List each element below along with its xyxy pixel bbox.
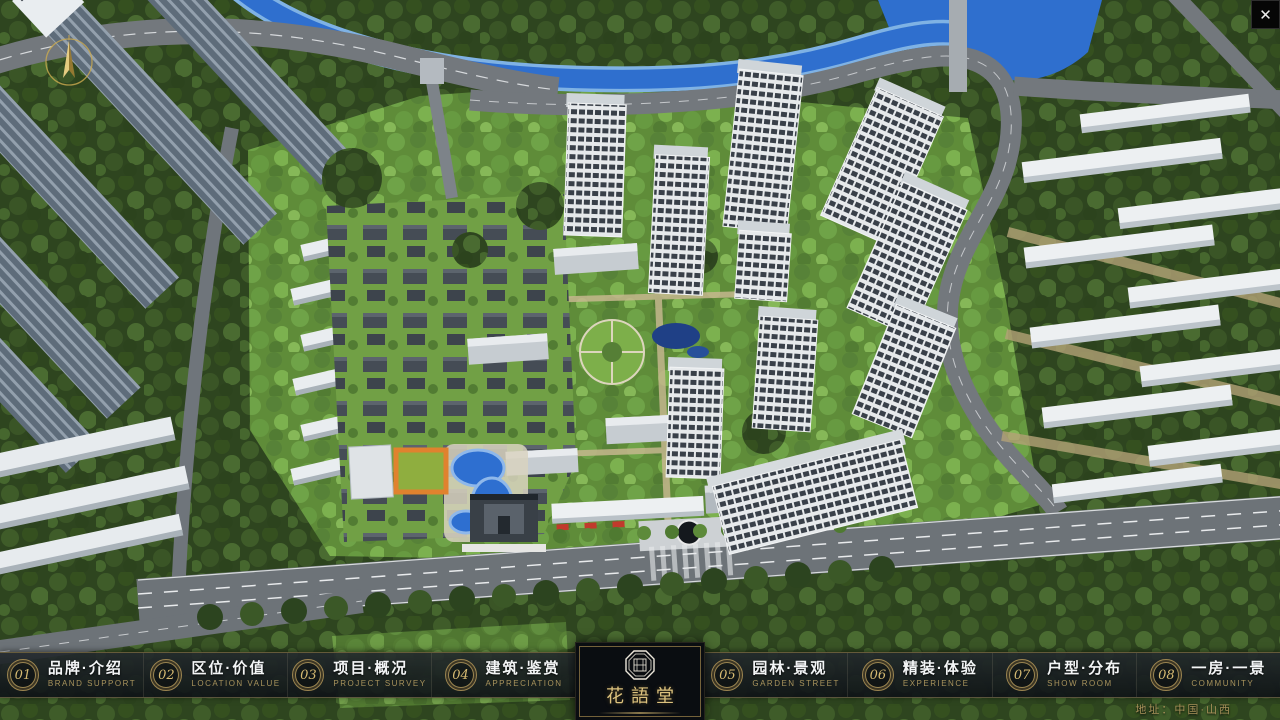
logo-caption-line: [599, 712, 681, 714]
nav-badge-08: 08: [1150, 659, 1182, 691]
nav-label: 建筑·鉴赏: [486, 661, 563, 677]
nav-label: 精装·体验: [903, 661, 978, 677]
nav-text: 户型·分布 SHOW ROOM: [1047, 661, 1122, 688]
project-logo[interactable]: 花語堂: [576, 643, 704, 720]
nav-item-views[interactable]: 08 一房·一景 COMMUNITY: [1137, 653, 1280, 697]
nav-text: 园林·景观 GARDEN STREET: [752, 661, 840, 688]
nav-label: 一房·一景: [1191, 661, 1266, 677]
nav-badge-06: 06: [862, 659, 894, 691]
nav-text: 一房·一景 COMMUNITY: [1191, 661, 1266, 688]
nav-caption: EXPERIENCE: [903, 680, 978, 688]
masterplan-scene[interactable]: [0, 0, 1280, 720]
nav-item-floorplan[interactable]: 07 户型·分布 SHOW ROOM: [993, 653, 1137, 697]
nav-caption: BRAND SUPPORT: [48, 680, 136, 688]
close-button[interactable]: ✕: [1252, 1, 1279, 28]
nav-item-project[interactable]: 03 项目·概况 PROJECT SURVEY: [288, 653, 432, 697]
nav-badge-04: 04: [445, 659, 477, 691]
nav-badge-03: 03: [292, 659, 324, 691]
nav-group-left: 01 品牌·介绍 BRAND SUPPORT 02 区位·价值 LOCATION…: [0, 653, 576, 697]
nav-label: 项目·概况: [333, 661, 426, 677]
nav-badge-07: 07: [1006, 659, 1038, 691]
logo-title: 花語堂: [599, 682, 681, 708]
nav-text: 品牌·介绍 BRAND SUPPORT: [48, 661, 136, 688]
nav-text: 建筑·鉴赏 APPRECIATION: [486, 661, 563, 688]
nav-caption: LOCATION VALUE: [191, 680, 280, 688]
nav-group-right: 05 园林·景观 GARDEN STREET 06 精装·体验 EXPERIEN…: [704, 653, 1280, 697]
nav-text: 区位·价值 LOCATION VALUE: [191, 661, 280, 688]
nav-badge-05: 05: [711, 659, 743, 691]
seal-icon: [625, 650, 655, 680]
nav-text: 项目·概况 PROJECT SURVEY: [333, 661, 426, 688]
close-icon: ✕: [1259, 6, 1272, 24]
nav-text: 精装·体验 EXPERIENCE: [903, 661, 978, 688]
compass-icon: [40, 33, 98, 91]
orange-roof-building: [396, 450, 446, 492]
nav-caption: PROJECT SURVEY: [333, 680, 426, 688]
nav-label: 区位·价值: [191, 661, 280, 677]
nav-caption: SHOW ROOM: [1047, 680, 1122, 688]
nav-item-brand[interactable]: 01 品牌·介绍 BRAND SUPPORT: [0, 653, 144, 697]
nav-badge-02: 02: [150, 659, 182, 691]
nav-label: 品牌·介绍: [48, 661, 136, 677]
nav-badge-01: 01: [7, 659, 39, 691]
app-window: ✕ 01 品牌·介绍 BRAND SUPPORT 02 区位·价值 LOCATI…: [0, 0, 1280, 720]
nav-caption: COMMUNITY: [1191, 680, 1266, 688]
nav-label: 户型·分布: [1047, 661, 1122, 677]
nav-item-garden[interactable]: 05 园林·景观 GARDEN STREET: [704, 653, 848, 697]
nav-item-architecture[interactable]: 04 建筑·鉴赏 APPRECIATION: [432, 653, 576, 697]
nav-item-interior[interactable]: 06 精装·体验 EXPERIENCE: [848, 653, 992, 697]
nav-caption: GARDEN STREET: [752, 680, 840, 688]
nav-caption: APPRECIATION: [486, 680, 563, 688]
nav-label: 园林·景观: [752, 661, 840, 677]
nav-item-location[interactable]: 02 区位·价值 LOCATION VALUE: [144, 653, 288, 697]
project-address: 地址：中国·山西: [1135, 701, 1232, 717]
